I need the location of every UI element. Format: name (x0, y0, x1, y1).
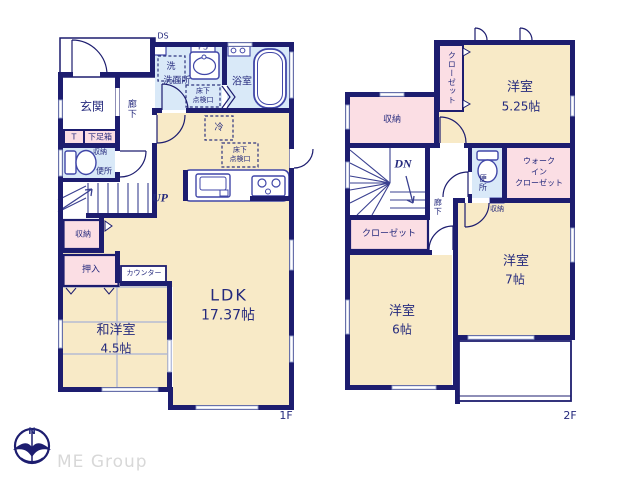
label-hatch: 点検口 (230, 156, 251, 164)
label-hallway-1f: 廊下 (125, 99, 135, 119)
door-arc (443, 172, 468, 197)
label-closet-bottom: クローゼット (362, 230, 416, 240)
label-ldk-name: LDK (210, 286, 248, 303)
label-washroom: 洗面所 (163, 77, 190, 87)
f1-stairs (58, 183, 148, 213)
window (228, 43, 252, 46)
balcony-rail (459, 341, 571, 401)
label-floor-1f: 1F (279, 410, 292, 422)
label-ps: PS (198, 44, 208, 53)
label-storage-small: 収納 (490, 206, 504, 214)
label-hatch: 床下 (233, 147, 247, 155)
label-storage-big: 収納 (383, 116, 401, 126)
casement-window-arc (475, 28, 487, 40)
window (380, 93, 404, 96)
window (346, 105, 349, 129)
label-room525-name: 洋室 (507, 81, 533, 95)
window (102, 388, 158, 391)
label-toilet-1f: 便所 (96, 168, 112, 177)
label-room6-name: 洋室 (389, 305, 415, 319)
window (468, 336, 534, 339)
label-ldk-size: 17.37帖 (201, 308, 255, 323)
doorway-gap (290, 149, 295, 168)
window (59, 320, 62, 348)
label-shoe-box: 下足箱 (88, 134, 112, 143)
label-jp-room-name: 和洋室 (96, 324, 135, 338)
label-bathroom: 浴室 (232, 78, 252, 89)
label-washer: 洗 (166, 63, 175, 73)
label-wic: イン (531, 169, 547, 178)
f1-entrance-porch (60, 38, 155, 77)
window (392, 386, 436, 389)
window (196, 406, 258, 409)
label-entrance: 玄関 (80, 101, 104, 114)
label-hatch: 点検口 (193, 97, 214, 105)
f2-balcony (459, 341, 571, 401)
window (571, 228, 574, 262)
label-toilet-storage: 収納 (93, 149, 107, 157)
f1-toilet-icon (65, 151, 96, 175)
label-hallway-2f: 廊下 (433, 198, 442, 216)
label-storage-1f: 収納 (75, 231, 91, 240)
label-fridge: 冷 (214, 124, 223, 134)
window (59, 100, 62, 118)
f2-stairs (345, 148, 425, 215)
door-arc (429, 226, 453, 250)
window (346, 162, 349, 188)
label-room6-size: 6帖 (392, 324, 412, 337)
label-wic: クローゼット (515, 180, 563, 189)
window (290, 240, 293, 270)
window (59, 150, 62, 176)
door-arc (120, 151, 146, 177)
label-room7-name: 洋室 (503, 255, 529, 269)
label-counter: カウンター (127, 270, 162, 278)
label-t-box: T (72, 134, 77, 143)
window (571, 96, 574, 116)
label-ds: DS (157, 33, 168, 42)
floorplan-image: DS PS 洗 洗面所 床下 点検口 浴室 玄関 廊下 T 下足箱 収納 便所 … (0, 0, 640, 480)
washbasin-icon (190, 52, 219, 79)
label-futon-closet: 押入 (82, 266, 100, 276)
floorplan-drawing (0, 0, 640, 480)
doorway-gap (116, 88, 120, 116)
label-room7-size: 7帖 (505, 274, 525, 287)
label-toilet-2f: 便所 (478, 174, 487, 192)
window (346, 300, 349, 334)
f2-room6-floor (350, 255, 452, 385)
label-jp-room-size: 4.5帖 (100, 343, 131, 356)
compass-north-label: N (28, 428, 36, 438)
label-floor-2f: 2F (563, 410, 576, 422)
label-dn: DN (394, 158, 411, 171)
company-logo-text: ME Group (57, 452, 148, 472)
window (290, 52, 293, 98)
label-up: UP (152, 192, 168, 205)
label-hatch: 床下 (196, 88, 210, 96)
window (290, 336, 293, 362)
sliding-partition (168, 340, 171, 372)
label-wic: ウォーク (523, 158, 555, 167)
bathtub-icon (254, 49, 286, 108)
label-room525-size: 5.25帖 (502, 101, 541, 114)
exterior-door-arc (294, 149, 313, 168)
casement-window-arc (520, 28, 532, 40)
label-closet-top: クローゼット (447, 51, 456, 105)
